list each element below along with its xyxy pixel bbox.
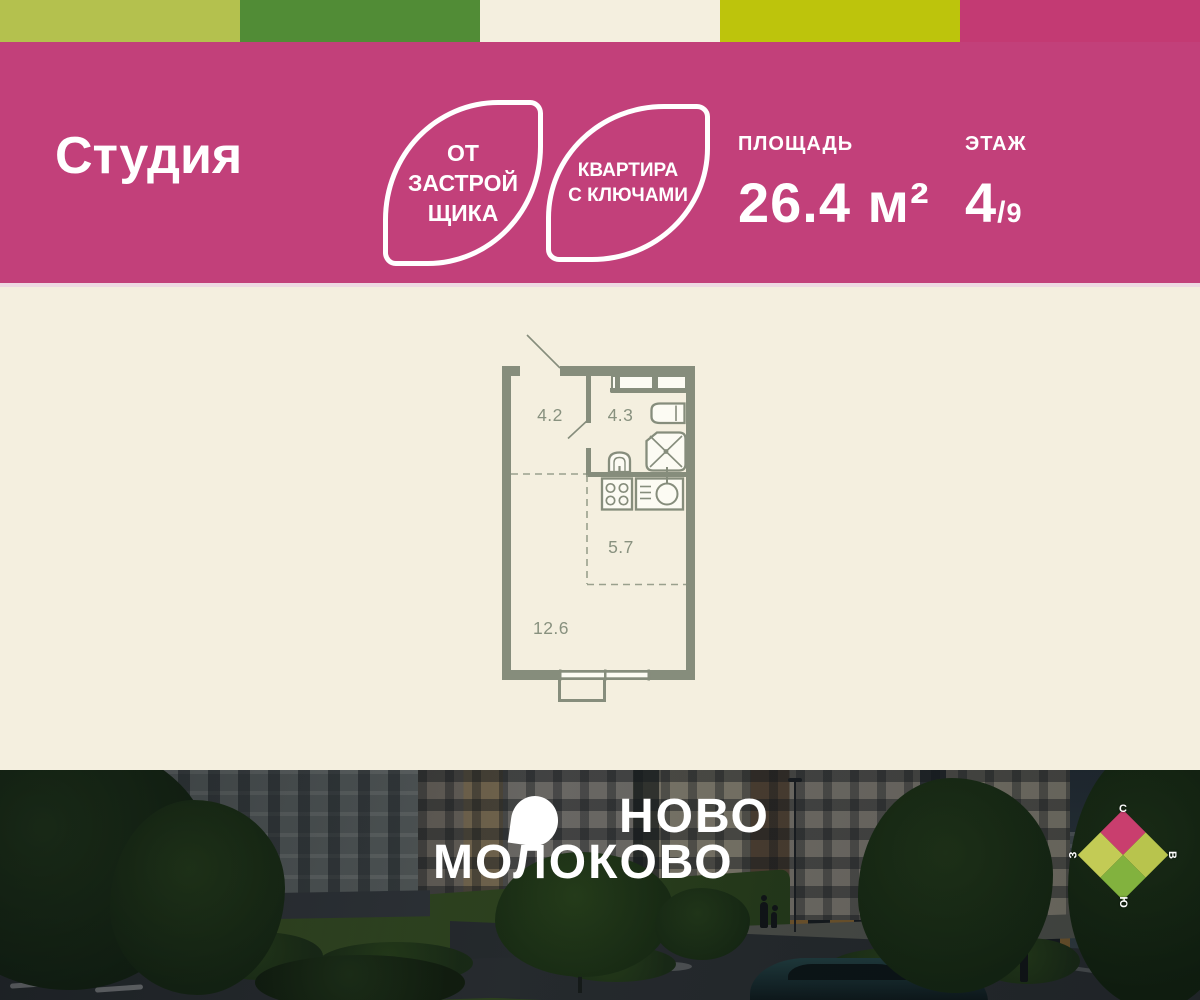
room-label-bathroom: 4.3 (608, 405, 634, 425)
balcony (560, 680, 605, 701)
floor-divider: / (997, 196, 1006, 229)
compass-south-label: Ю (1117, 896, 1129, 907)
compass-diamond (1078, 810, 1169, 901)
room-label-kitchen: 5.7 (608, 537, 634, 557)
bathroom-door-swing (568, 419, 589, 439)
wall-bathroom-bottom (586, 472, 686, 477)
page-title: Студия (55, 130, 242, 182)
compass-north-label: С (1119, 803, 1127, 815)
wall-top-left-stub (502, 366, 520, 376)
strip-segment-1 (0, 0, 240, 42)
area-stat: ПЛОЩАДЬ 26.4 м² (738, 133, 930, 235)
badge-apartment-with-keys-line2: С КЛЮЧАМИ (568, 183, 688, 208)
badge-from-developer-line1: ОТ (447, 138, 479, 168)
bathtub (652, 404, 685, 424)
floor-plan-drawing: 4.2 4.3 5.7 12.6 (440, 320, 740, 720)
badge-from-developer: ОТ ЗАСТРОЙ ЩИКА (383, 100, 543, 266)
floor-stat: ЭТАЖ 4/9 (965, 133, 1027, 235)
floor-value: 4/9 (965, 170, 1027, 235)
badge-from-developer-line3: ЩИКА (428, 198, 499, 228)
bathroom-sink (609, 453, 630, 473)
logo-line2: МОЛОКОВО (433, 841, 793, 885)
room-label-hallway: 4.2 (537, 405, 563, 425)
strip-segment-4 (720, 0, 960, 42)
wall-top (560, 366, 695, 376)
wall-left (502, 366, 511, 680)
top-color-strip (0, 0, 1200, 42)
strip-segment-2 (240, 0, 480, 42)
area-value: 26.4 м² (738, 170, 930, 235)
entrance-door-swing (527, 335, 560, 368)
logo-line1: НОВО (619, 793, 793, 841)
complex-photo: НОВО МОЛОКОВО С В Ю З (0, 770, 1200, 1000)
strip-segment-3 (480, 0, 720, 42)
floor-number: 4 (965, 171, 997, 234)
badge-apartment-with-keys-line1: КВАРТИРА (578, 158, 679, 183)
novo-molokovo-logo: НОВО МОЛОКОВО (433, 793, 793, 885)
wall-bathroom-left-upper (586, 376, 591, 423)
room-label-living: 12.6 (533, 618, 569, 638)
floor-total: 9 (1007, 198, 1023, 228)
header-band: Студия ОТ ЗАСТРОЙ ЩИКА КВАРТИРА С КЛЮЧАМ… (0, 42, 1200, 283)
strip-segment-5 (960, 0, 1200, 42)
badge-apartment-with-keys: КВАРТИРА С КЛЮЧАМИ (546, 104, 710, 262)
vent-shaft (610, 376, 686, 393)
floor-plan-section: 4.2 4.3 5.7 12.6 (0, 287, 1200, 770)
compass-west-label: З (1067, 852, 1079, 859)
area-label: ПЛОЩАДЬ (738, 133, 930, 156)
badge-from-developer-line2: ЗАСТРОЙ (408, 168, 518, 198)
compass-east-label: В (1166, 851, 1178, 859)
stove (602, 479, 632, 510)
compass-icon: С В Ю З (1077, 809, 1169, 901)
floor-label: ЭТАЖ (965, 133, 1027, 156)
wall-right (686, 366, 695, 680)
shower-cabin (647, 433, 686, 471)
